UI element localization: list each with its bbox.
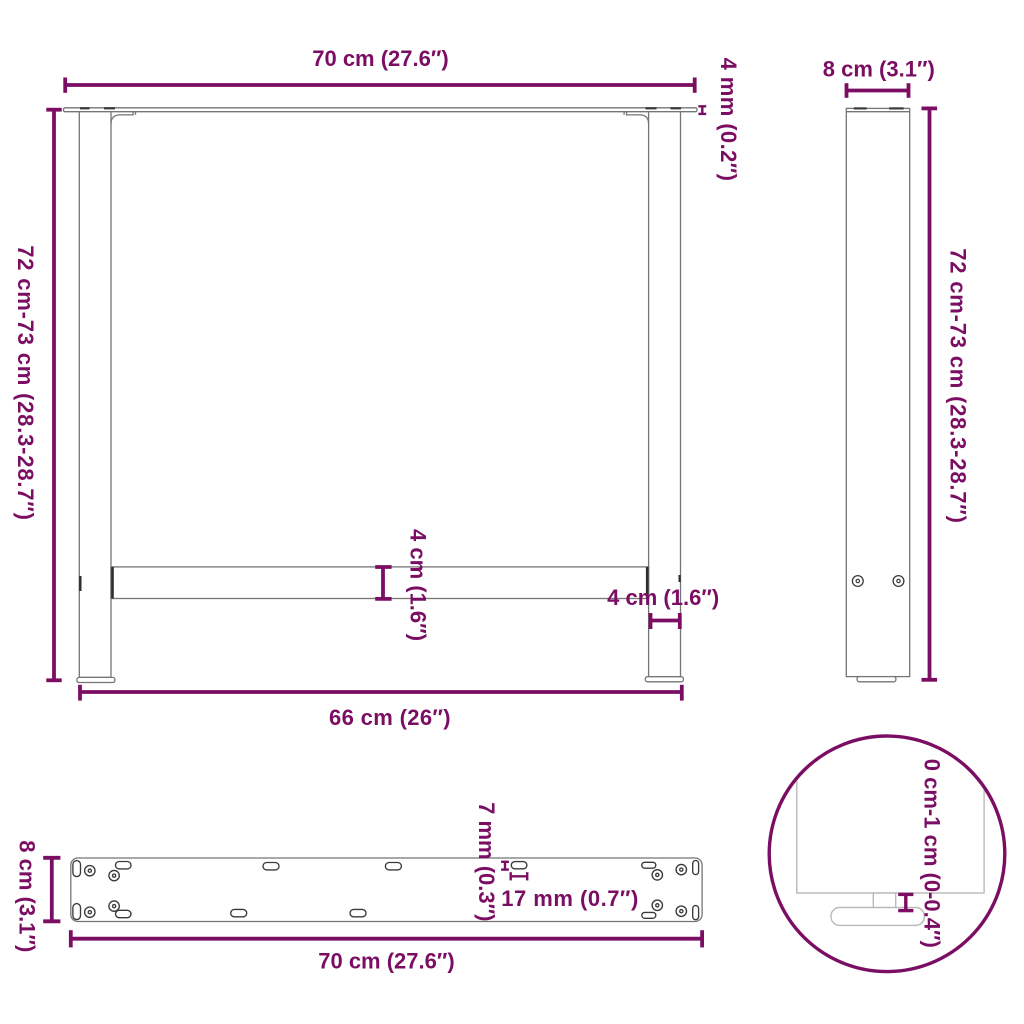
svg-text:4 cm (1.6″): 4 cm (1.6″) xyxy=(406,529,431,641)
svg-text:8 cm (3.1″): 8 cm (3.1″) xyxy=(823,57,935,82)
svg-text:17 mm (0.7″): 17 mm (0.7″) xyxy=(501,886,639,911)
svg-text:70 cm (27.6″): 70 cm (27.6″) xyxy=(312,46,449,71)
svg-text:4 cm (1.6″): 4 cm (1.6″) xyxy=(607,585,719,610)
svg-text:7 mm (0.3″): 7 mm (0.3″) xyxy=(474,802,499,921)
svg-text:0 cm-1 cm (0-0.4″): 0 cm-1 cm (0-0.4″) xyxy=(919,759,944,948)
svg-text:70 cm (27.6″): 70 cm (27.6″) xyxy=(318,949,455,974)
svg-text:8 cm (3.1″): 8 cm (3.1″) xyxy=(15,840,40,952)
svg-text:4 mm (0.2″): 4 mm (0.2″) xyxy=(716,58,741,182)
svg-text:72 cm-73 cm (28.3-28.7″): 72 cm-73 cm (28.3-28.7″) xyxy=(13,245,38,521)
svg-text:66 cm (26″): 66 cm (26″) xyxy=(329,705,451,730)
svg-text:72 cm-73 cm (28.3-28.7″): 72 cm-73 cm (28.3-28.7″) xyxy=(946,248,971,524)
